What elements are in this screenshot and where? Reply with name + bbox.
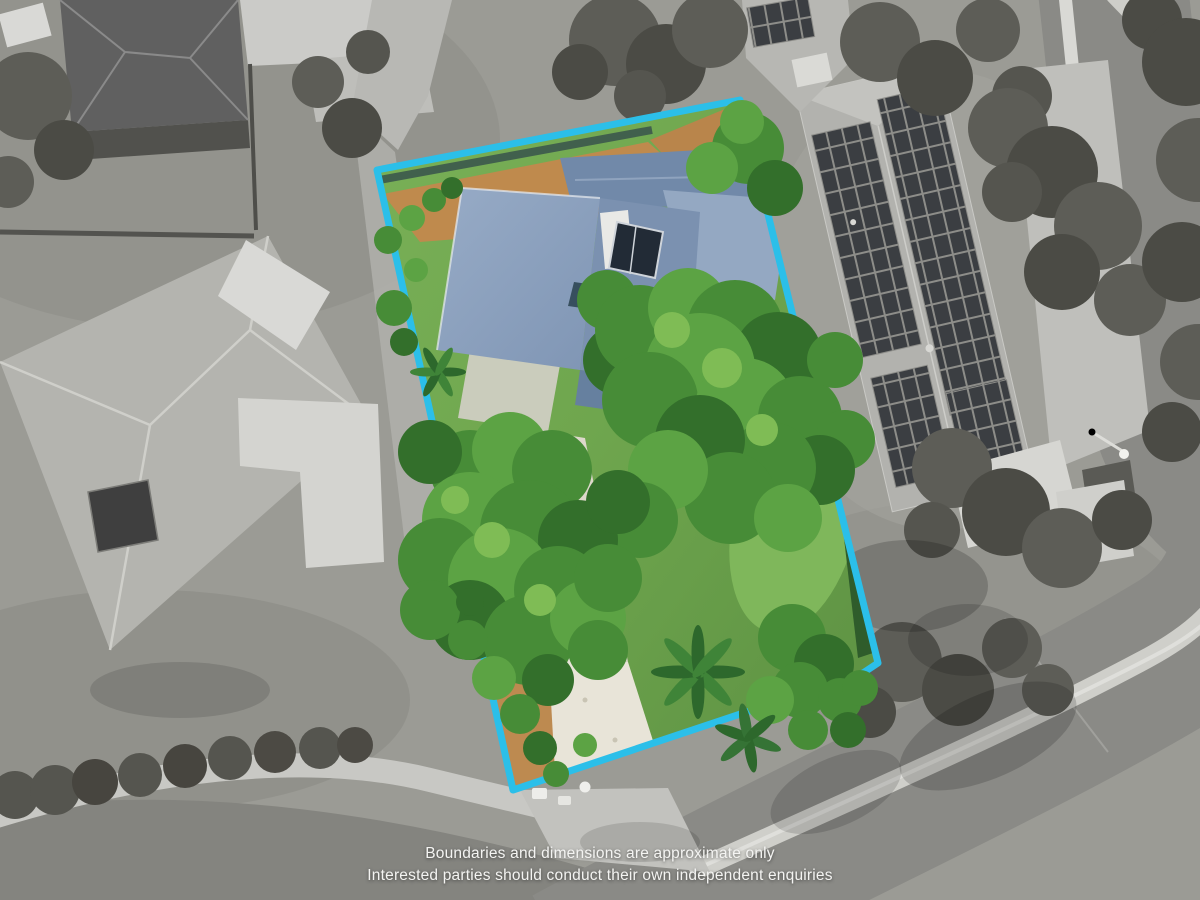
shrub [523,731,557,765]
gray-tree [292,56,344,108]
tree-shadow [580,822,700,862]
canopy-highlight [654,312,690,348]
shrub [500,694,540,734]
gray-tree [897,40,973,116]
shrub [842,670,878,706]
hedge-bush [254,731,296,773]
hedge-bush [299,727,341,769]
shrub [448,620,488,660]
tree [720,100,764,144]
gray-tree [34,120,94,180]
shrub [456,588,484,616]
canopy-highlight [746,414,778,446]
canopy-highlight [474,522,510,558]
shrub [404,258,428,282]
tree-shadow [90,662,270,718]
hedge-bush [30,765,80,815]
round-lid [580,782,591,793]
shrub [441,177,463,199]
gray-tree [982,162,1042,222]
gravel-speckle [613,738,618,743]
light-pole [1089,429,1096,436]
shrub [573,733,597,757]
gravel-speckle [583,698,588,703]
shrub [376,290,412,326]
aerial-photo: Boundaries and dimensions are approximat… [0,0,1200,900]
gray-tree [1024,234,1100,310]
hedge-bush [72,759,118,805]
canopy [807,332,863,388]
hedge-bush [163,744,207,788]
gray-tree [346,30,390,74]
shrub [399,205,425,231]
wheelie-bin [558,796,571,805]
canopy [754,484,822,552]
hedge-bush [337,727,373,763]
shrub [830,712,866,748]
tree-shadow [908,604,1028,676]
shrub [390,328,418,356]
canopy-highlight [702,348,742,388]
hedge-bush [118,753,162,797]
wheelie-bin [532,788,547,799]
gray-tree [1022,508,1102,588]
canopy [586,470,650,534]
canopy [574,544,642,612]
shrub [788,710,828,750]
tiled-hip-roof [60,0,248,132]
canopy [398,420,462,484]
canopy-highlight [441,486,469,514]
solar-panel [88,480,158,552]
gray-tree [1092,490,1152,550]
hedge-bush [208,736,252,780]
gray-tree [552,44,608,100]
shrub [472,656,516,700]
shrub [374,226,402,254]
tree [747,160,803,216]
aerial-photo-canvas [0,0,1200,900]
roof-plane-main [437,188,600,370]
gray-tree [322,98,382,158]
gray-tree [956,0,1020,62]
tree [686,142,738,194]
shrub [543,761,569,787]
canopy [568,620,628,680]
light-head [1119,449,1129,459]
canopy-highlight [524,584,556,616]
road-south [0,875,600,900]
palm-tree [651,625,745,719]
gray-tree [1142,402,1200,462]
